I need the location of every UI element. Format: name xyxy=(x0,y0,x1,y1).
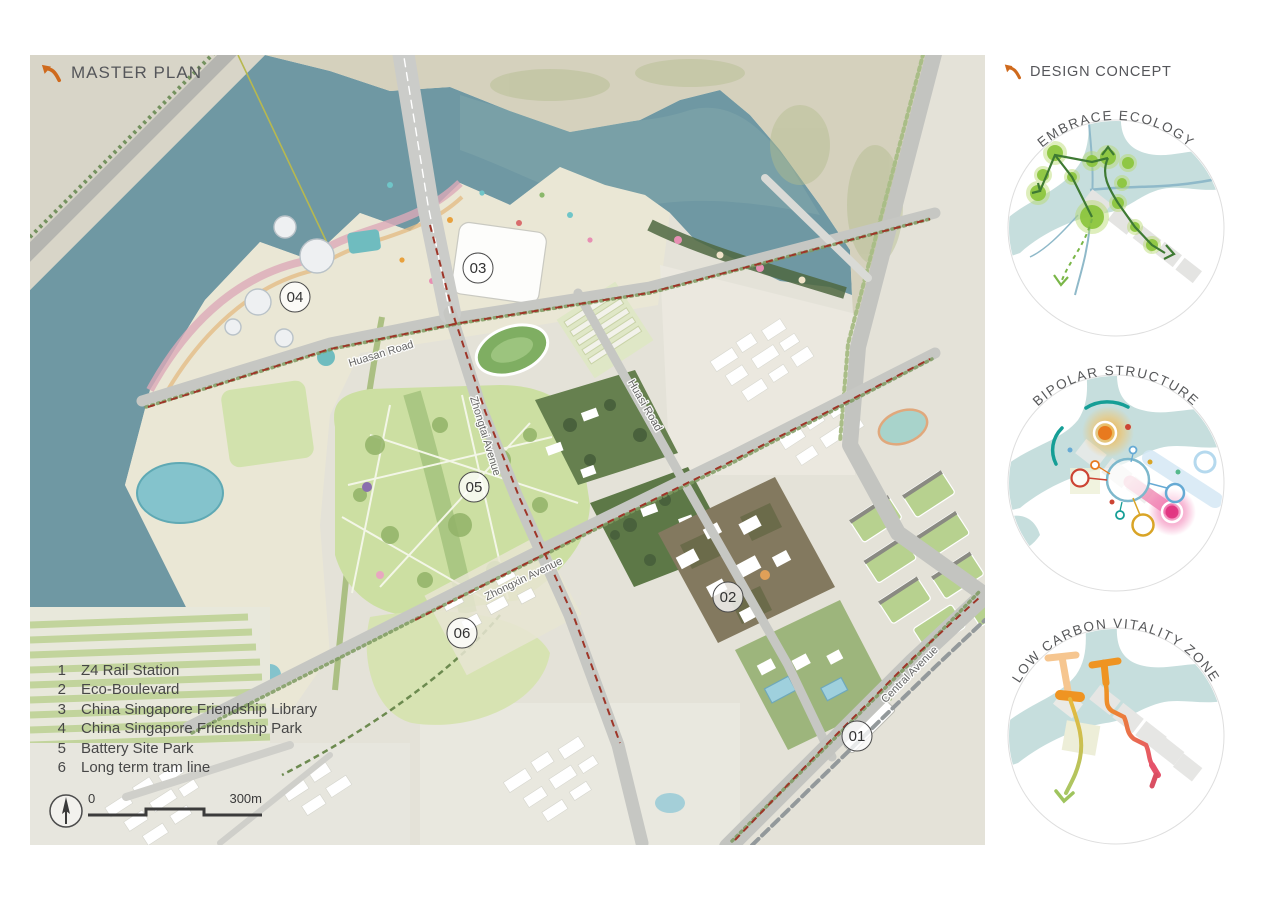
park-lawn xyxy=(220,379,315,468)
context-pond xyxy=(655,793,685,813)
legend-label: Eco-Boulevard xyxy=(81,680,179,699)
marker-01: 01 xyxy=(842,721,872,751)
legend-row: 6 Long term tram line xyxy=(48,758,317,777)
marker-02: 02 xyxy=(713,582,743,612)
pool-square xyxy=(347,229,382,254)
svg-text:02: 02 xyxy=(720,589,737,606)
park-feature-pink xyxy=(376,571,384,579)
legend-label: Battery Site Park xyxy=(81,739,194,758)
legend-label: China Singapore Friendship Library xyxy=(81,700,317,719)
legend-row: 5 Battery Site Park xyxy=(48,739,317,758)
park-lake xyxy=(137,463,223,523)
pink-pole-core xyxy=(1166,506,1179,519)
concept-diagram-ecology: EMBRACE ECOLOGY xyxy=(1000,95,1232,340)
scale-end-label: 300m xyxy=(229,791,262,806)
legend-number: 4 xyxy=(48,719,66,738)
orange-pole-core xyxy=(1098,426,1112,440)
master-plan-header: MASTER PLAN xyxy=(40,63,202,83)
legend-row: 4 China Singapore Friendship Park xyxy=(48,719,317,738)
blue-axis-node xyxy=(1195,452,1215,472)
master-plan-title: MASTER PLAN xyxy=(71,63,202,83)
svg-text:06: 06 xyxy=(454,625,471,642)
legend-label: Z4 Rail Station xyxy=(81,661,179,680)
north-compass-icon xyxy=(50,795,82,827)
marker-04: 04 xyxy=(280,282,310,312)
legend-label: China Singapore Friendship Park xyxy=(81,719,302,738)
legend-label: Long term tram line xyxy=(81,758,210,777)
marker-05: 05 xyxy=(459,472,489,502)
legend-number: 3 xyxy=(48,700,66,719)
park-feature-purple xyxy=(362,482,372,492)
concept-diagram-lowcarbon: LOW CARBON VITALITY ZONE xyxy=(1000,603,1232,848)
presentation-board: Huasan Road Zhongtai Avenue Zhongxin Ave… xyxy=(0,0,1273,900)
scale-start-label: 0 xyxy=(88,791,95,806)
map-legend: 1 Z4 Rail Station 2 Eco-Boulevard 3 Chin… xyxy=(48,661,317,777)
svg-text:05: 05 xyxy=(466,479,483,496)
legend-row: 3 China Singapore Friendship Library xyxy=(48,700,317,719)
lowcarbon-diagram: LOW CARBON VITALITY ZONE xyxy=(1000,603,1232,848)
legend-row: 1 Z4 Rail Station xyxy=(48,661,317,680)
design-concept-header: DESIGN CONCEPT xyxy=(1003,63,1172,80)
marker-03: 03 xyxy=(463,253,493,283)
legend-row: 2 Eco-Boulevard xyxy=(48,680,317,699)
design-concept-title: DESIGN CONCEPT xyxy=(1030,64,1172,80)
legend-number: 5 xyxy=(48,739,66,758)
central-hub-ring xyxy=(1107,459,1149,501)
concept-diagram-bipolar: BIPOLAR STRUCTURE xyxy=(1000,350,1232,595)
svg-text:03: 03 xyxy=(470,260,487,277)
red-dot xyxy=(1125,424,1131,430)
arrow-icon xyxy=(1003,63,1022,80)
legend-number: 2 xyxy=(48,680,66,699)
marker-06: 06 xyxy=(447,618,477,648)
scale-bar: 0 300m xyxy=(38,783,273,838)
legend-number: 1 xyxy=(48,661,66,680)
ecology-diagram: EMBRACE ECOLOGY xyxy=(1000,95,1232,340)
bipolar-diagram: BIPOLAR STRUCTURE xyxy=(1000,350,1232,595)
context-block-south xyxy=(420,703,740,845)
legend-number: 6 xyxy=(48,758,66,777)
svg-text:04: 04 xyxy=(287,289,304,306)
scale-bar-line xyxy=(88,809,262,815)
svg-text:01: 01 xyxy=(849,728,866,745)
arrow-icon xyxy=(40,63,62,83)
master-plan-panel: Huasan Road Zhongtai Avenue Zhongxin Ave… xyxy=(30,55,985,845)
